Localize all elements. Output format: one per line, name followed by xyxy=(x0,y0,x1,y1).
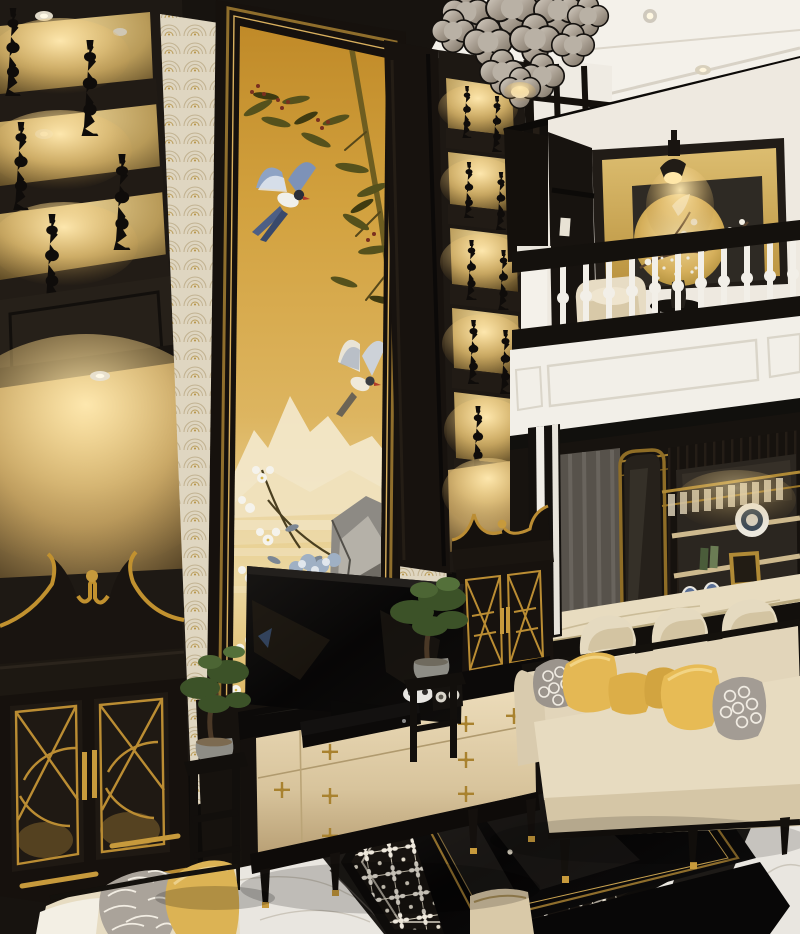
door-handle[interactable] xyxy=(82,752,87,800)
mirror-door xyxy=(620,450,666,608)
yellow-pillow-large-left xyxy=(562,652,617,712)
door-handle[interactable] xyxy=(92,750,97,798)
living-room-scene xyxy=(0,0,800,934)
yellow-pillow-large-right xyxy=(661,664,720,730)
mezz-corner-post xyxy=(504,128,552,262)
quatrefoil-pillow-right xyxy=(712,677,766,740)
yellow-pillow-small-left xyxy=(608,672,650,714)
scene-svg xyxy=(0,0,800,934)
